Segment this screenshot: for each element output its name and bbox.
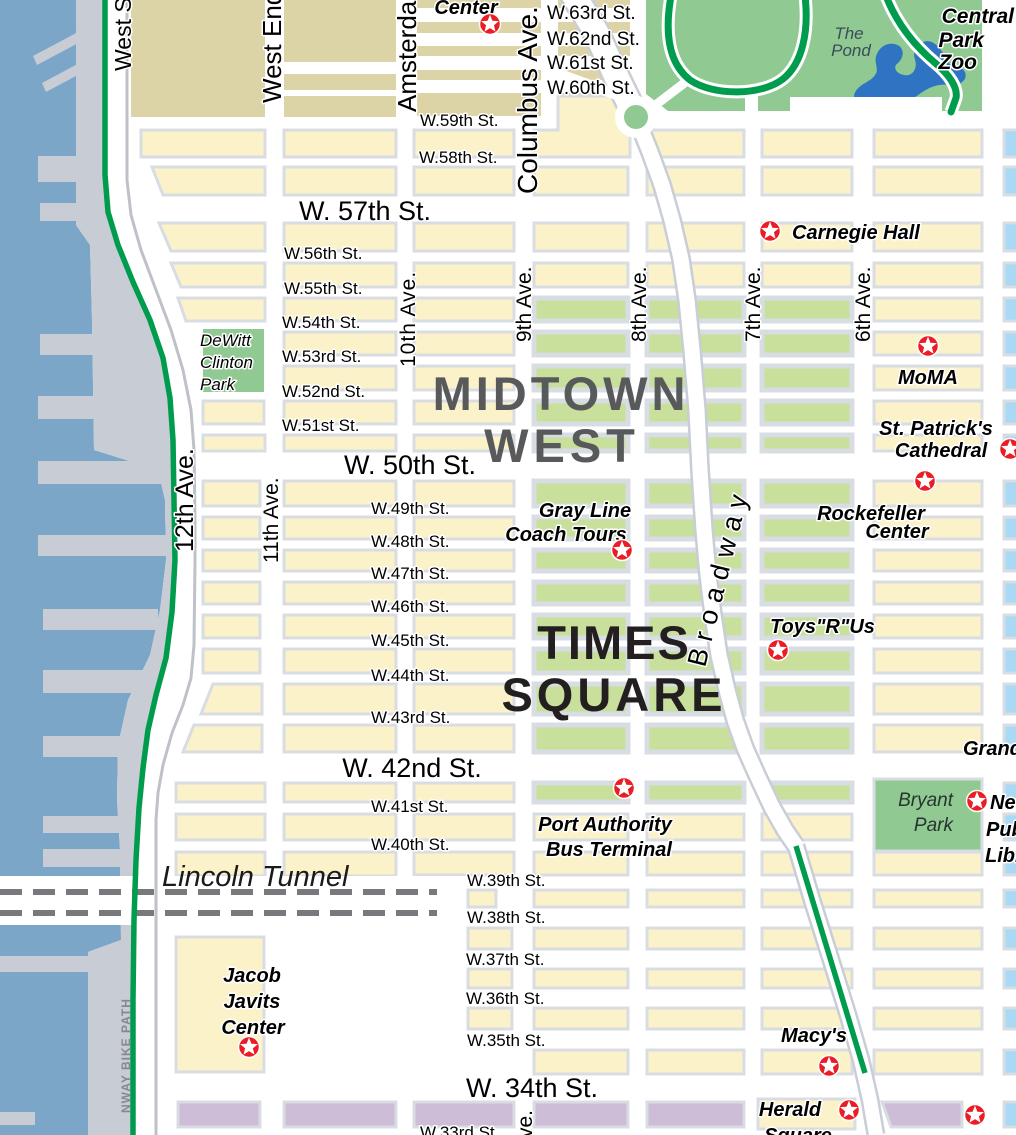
svg-text:Libra: Libra — [985, 845, 1016, 867]
svg-text:Jacob: Jacob — [223, 965, 281, 987]
svg-text:11th Ave.: 11th Ave. — [260, 477, 283, 563]
svg-text:W.63rd St.: W.63rd St. — [547, 3, 636, 24]
svg-text:W. 34th St.: W. 34th St. — [466, 1073, 598, 1103]
svg-text:W.51st St.: W.51st St. — [282, 416, 359, 435]
svg-text:TIMES: TIMES — [537, 616, 691, 669]
svg-text:10th Ave.: 10th Ave. — [397, 271, 420, 367]
svg-text:Ne: Ne — [990, 792, 1016, 814]
svg-text:Javits: Javits — [224, 991, 281, 1013]
svg-text:Carnegie Hall: Carnegie Hall — [792, 222, 920, 244]
svg-text:W.46th St.: W.46th St. — [371, 597, 449, 616]
svg-text:Toys"R"Us: Toys"R"Us — [770, 616, 875, 638]
svg-text:West End Av: West End Av — [257, 0, 287, 103]
svg-text:Amsterdam A: Amsterdam A — [392, 0, 422, 112]
svg-text:DeWitt: DeWitt — [200, 331, 252, 350]
svg-text:Columbus Ave.: Columbus Ave. — [512, 6, 543, 194]
svg-text:St. Patrick's: St. Patrick's — [879, 418, 993, 440]
svg-text:Square: Square — [764, 1125, 832, 1135]
svg-text:MoMA: MoMA — [898, 367, 958, 389]
svg-text:W.33rd St.: W.33rd St. — [420, 1123, 499, 1135]
svg-text:W.40th St.: W.40th St. — [371, 835, 449, 854]
svg-text:W.37th St.: W.37th St. — [466, 950, 544, 969]
svg-text:W.53rd St.: W.53rd St. — [282, 347, 361, 366]
svg-text:W.41st St.: W.41st St. — [371, 797, 448, 816]
svg-text:Lincoln Tunnel: Lincoln Tunnel — [162, 861, 350, 893]
svg-text:W.49th St.: W.49th St. — [371, 499, 449, 518]
svg-text:W.54th St.: W.54th St. — [282, 313, 360, 332]
svg-text:Center: Center — [865, 521, 930, 543]
svg-text:9th Ave.: 9th Ave. — [513, 266, 536, 342]
svg-text:8th Ave.: 8th Ave. — [628, 266, 651, 342]
svg-text:W.61st St.: W.61st St. — [547, 53, 634, 74]
svg-text:W.59th St.: W.59th St. — [420, 111, 498, 130]
svg-text:W.44th St.: W.44th St. — [371, 666, 449, 685]
svg-text:W.56th St.: W.56th St. — [284, 244, 362, 263]
svg-text:Publi: Publi — [986, 819, 1016, 841]
svg-text:Grand: Grand — [963, 738, 1016, 760]
svg-text:Herald: Herald — [759, 1099, 822, 1121]
svg-text:6th Ave.: 6th Ave. — [852, 266, 875, 342]
svg-text:WEST: WEST — [484, 419, 640, 472]
svg-text:W.39th St.: W.39th St. — [467, 871, 545, 890]
svg-text:W.62nd St.: W.62nd St. — [547, 29, 640, 50]
svg-text:W.43rd St.: W.43rd St. — [371, 708, 450, 727]
svg-text:W.58th St.: W.58th St. — [419, 148, 497, 167]
svg-text:W.52nd St.: W.52nd St. — [282, 382, 365, 401]
svg-text:Pond: Pond — [831, 41, 871, 60]
svg-text:ve.: ve. — [514, 1110, 537, 1135]
svg-text:W.35th St.: W.35th St. — [467, 1031, 545, 1050]
svg-text:W.48th St.: W.48th St. — [371, 532, 449, 551]
svg-text:SQUARE: SQUARE — [501, 668, 726, 721]
svg-text:W.36th St.: W.36th St. — [466, 989, 544, 1008]
svg-text:NWAY BIKE PATH: NWAY BIKE PATH — [119, 998, 133, 1113]
svg-text:MIDTOWN: MIDTOWN — [433, 367, 690, 420]
svg-text:W.45th St.: W.45th St. — [371, 631, 449, 650]
svg-text:Gray Line: Gray Line — [539, 500, 631, 522]
svg-text:Coach Tours: Coach Tours — [505, 524, 627, 546]
svg-text:7th Ave.: 7th Ave. — [742, 266, 765, 342]
svg-text:Cathedral: Cathedral — [895, 440, 988, 462]
svg-text:Macy's: Macy's — [781, 1025, 847, 1047]
svg-text:12th Ave.: 12th Ave. — [171, 448, 199, 552]
svg-text:Port Authority: Port Authority — [538, 814, 673, 836]
svg-text:Bryant: Bryant — [898, 790, 954, 811]
svg-text:W.60th St.: W.60th St. — [547, 78, 635, 99]
svg-text:W.55th St.: W.55th St. — [284, 279, 362, 298]
svg-text:W. 50th St.: W. 50th St. — [344, 450, 476, 480]
svg-text:W.47th St.: W.47th St. — [371, 564, 449, 583]
svg-text:W. 57th St.: W. 57th St. — [299, 196, 431, 226]
svg-text:Park: Park — [938, 29, 985, 52]
svg-text:West Sid: West Sid — [110, 0, 136, 71]
svg-text:W.38th St.: W.38th St. — [467, 908, 545, 927]
svg-text:Park: Park — [200, 375, 236, 394]
svg-text:Clinton: Clinton — [200, 353, 253, 372]
svg-text:Zoo: Zoo — [938, 51, 978, 74]
svg-text:Central: Central — [942, 5, 1016, 28]
svg-text:Bus Terminal: Bus Terminal — [546, 839, 672, 861]
svg-text:W. 42nd St.: W. 42nd St. — [342, 753, 482, 783]
svg-text:Park: Park — [914, 815, 955, 836]
svg-text:Center: Center — [221, 1017, 286, 1039]
